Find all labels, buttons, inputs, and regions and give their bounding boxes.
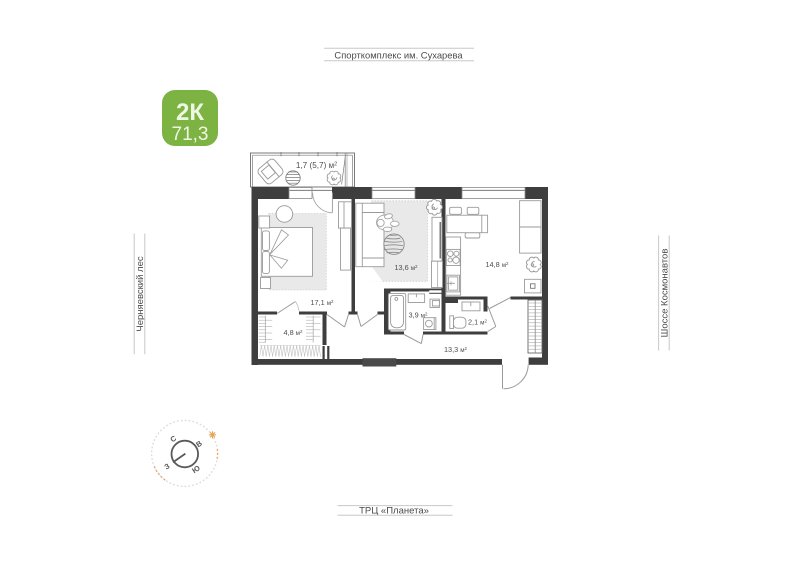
svg-text:Спорткомплекс им. Сухарева: Спорткомплекс им. Сухарева (334, 50, 463, 61)
svg-text:71,3: 71,3 (172, 124, 209, 145)
svg-text:17,1 м2: 17,1 м2 (310, 298, 334, 307)
svg-text:2К: 2К (176, 99, 204, 126)
svg-text:4,8 м2: 4,8 м2 (283, 328, 303, 337)
svg-text:1,7 (5,7) м2: 1,7 (5,7) м2 (296, 161, 337, 170)
svg-text:13,3 м2: 13,3 м2 (444, 345, 468, 354)
svg-text:2,1 м2: 2,1 м2 (468, 318, 488, 327)
svg-text:14,8 м2: 14,8 м2 (485, 260, 509, 269)
svg-text:З: З (163, 461, 172, 471)
svg-text:13,6 м2: 13,6 м2 (394, 263, 418, 272)
